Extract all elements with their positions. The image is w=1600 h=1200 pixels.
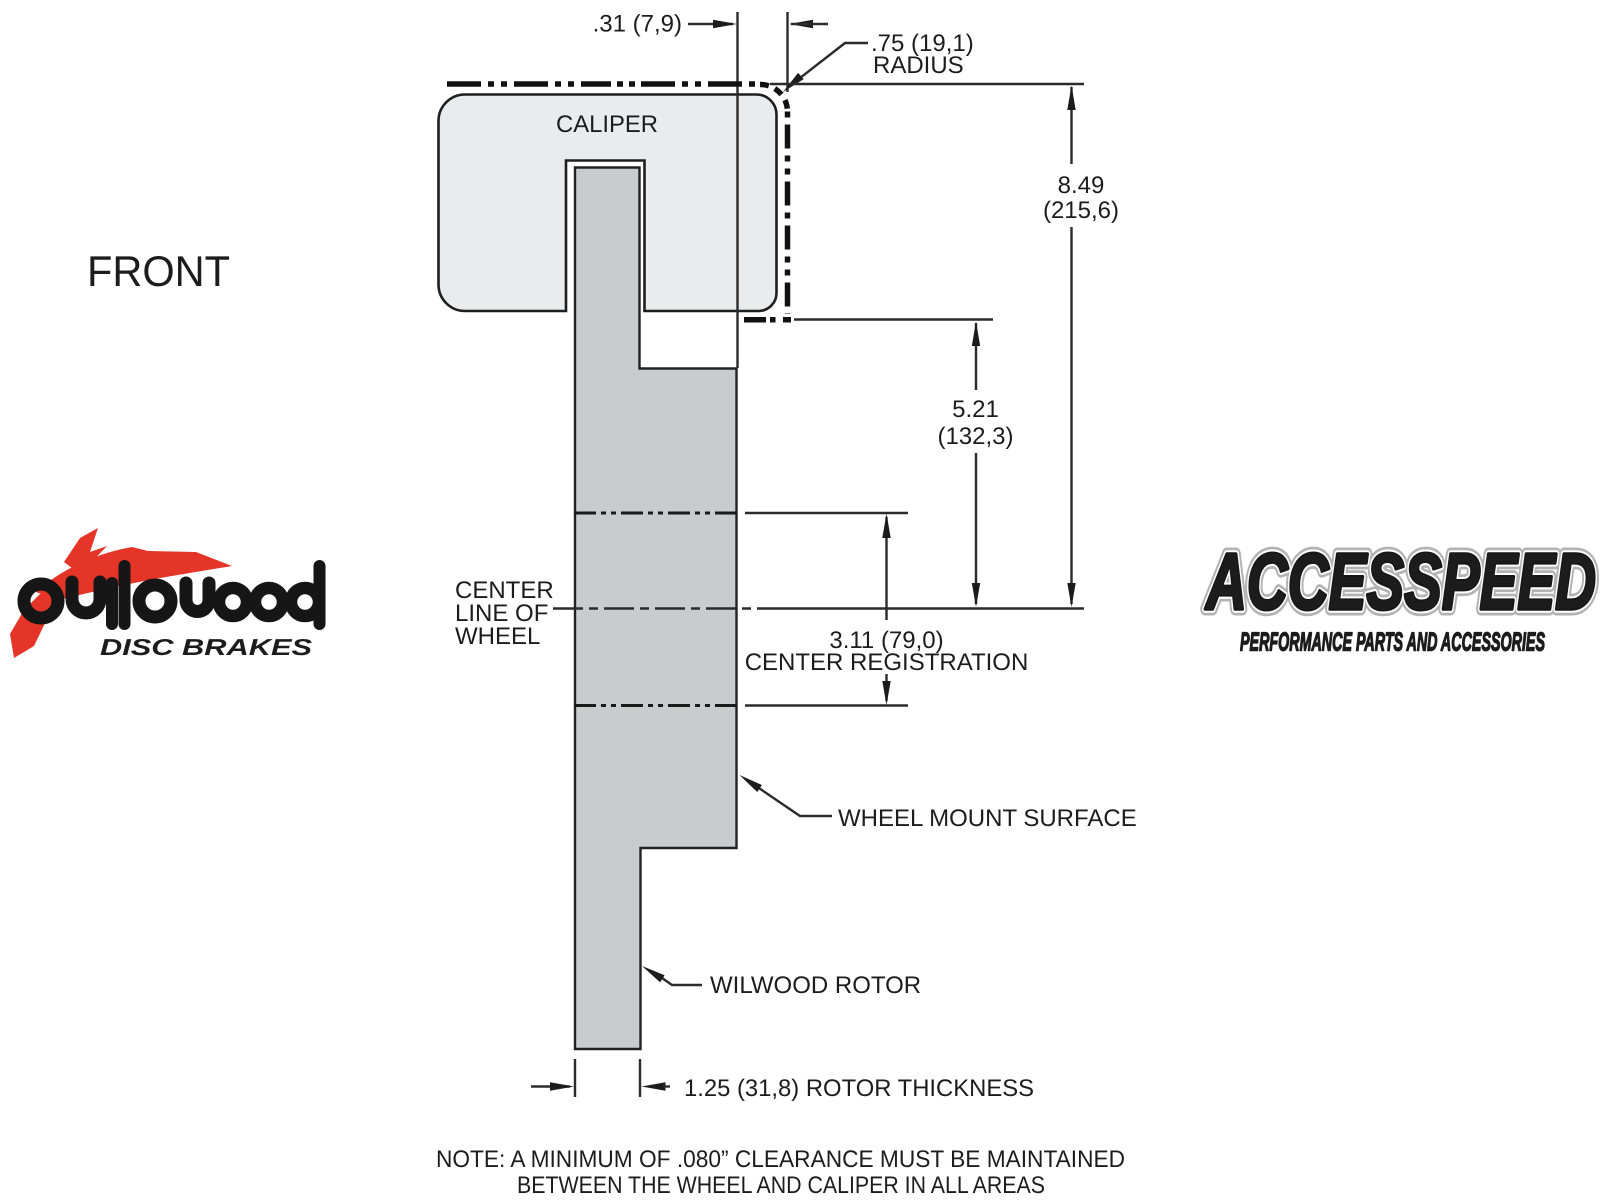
svg-text:.31 (7,9): .31 (7,9) xyxy=(593,11,682,38)
svg-text:NOTE: A MINIMUM OF .080” CLEAR: NOTE: A MINIMUM OF .080” CLEARANCE MUST … xyxy=(436,1146,1125,1173)
svg-text:CENTER REGISTRATION: CENTER REGISTRATION xyxy=(745,649,1029,676)
svg-text:(215,6): (215,6) xyxy=(1043,197,1119,224)
svg-text:WILWOOD ROTOR: WILWOOD ROTOR xyxy=(710,972,921,999)
svg-text:WHEEL: WHEEL xyxy=(455,623,540,650)
svg-text:FRONT: FRONT xyxy=(87,248,230,296)
svg-text:CALIPER: CALIPER xyxy=(556,111,658,138)
svg-text:RADIUS: RADIUS xyxy=(873,52,964,79)
svg-text:5.21: 5.21 xyxy=(952,396,999,423)
svg-text:8.49: 8.49 xyxy=(1058,172,1105,199)
svg-text:ACCESSPEED: ACCESSPEED xyxy=(1205,537,1596,626)
svg-text:DISC BRAKES: DISC BRAKES xyxy=(100,634,313,660)
svg-text:1.25 (31,8) ROTOR THICKNESS: 1.25 (31,8) ROTOR THICKNESS xyxy=(684,1075,1034,1102)
svg-text:WHEEL MOUNT SURFACE: WHEEL MOUNT SURFACE xyxy=(838,805,1137,832)
svg-text:(132,3): (132,3) xyxy=(937,423,1013,450)
svg-text:BETWEEN THE WHEEL AND CALIPER: BETWEEN THE WHEEL AND CALIPER IN ALL ARE… xyxy=(517,1172,1045,1199)
svg-text:PERFORMANCE PARTS AND ACCESSOR: PERFORMANCE PARTS AND ACCESSORIES xyxy=(1240,627,1545,657)
